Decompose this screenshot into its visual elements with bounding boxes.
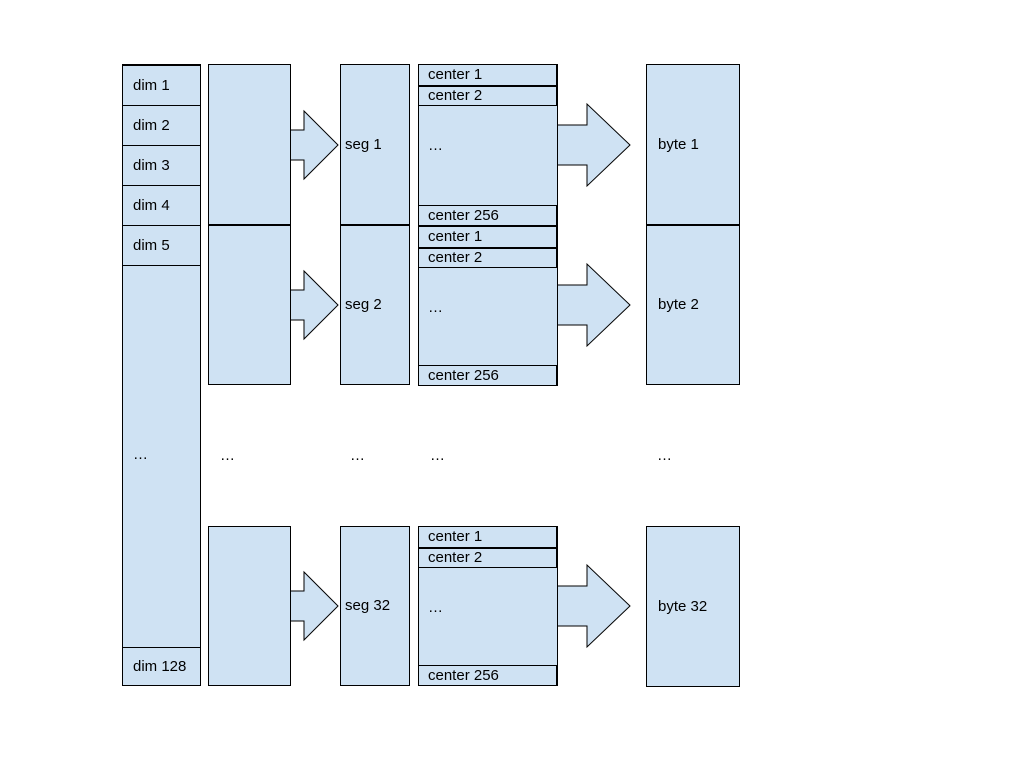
seg-label: seg 2 [345,296,382,314]
seg-label: seg 32 [345,597,390,615]
center-cell-label: center 256 [428,667,499,685]
center-group-ellipsis: … [428,136,443,156]
dim-cell-5: dim 5 [123,226,200,266]
seg-1-box: seg 1 [340,64,410,225]
center-group-2: center 1 center 2 … center 256 [418,226,558,386]
seg-label: seg 1 [345,136,382,154]
ellipsis-text: … [428,137,443,155]
dim-cell-3: dim 3 [123,146,200,186]
dim-column-ellipsis: … [133,446,148,464]
center-column-ellipsis: … [430,446,445,466]
byte-label: byte 32 [658,598,707,616]
ellipsis-text: … [428,599,443,617]
diagram-canvas: dim 1 dim 2 dim 3 dim 4 dim 5 … dim 128 … [0,0,1024,768]
right-arrow-icon [557,104,630,186]
dim-cell-label: dim 4 [133,197,170,215]
ellipsis-text: … [220,447,235,465]
center-cell: center 1 [418,64,557,86]
dim-cell-label: dim 3 [133,157,170,175]
dim-group-box-32 [208,526,291,686]
center-cell: center 256 [418,665,557,686]
center-cell-label: center 1 [428,228,482,246]
ellipsis-text: … [350,447,365,465]
center-group-1: center 1 center 2 … center 256 [418,64,558,226]
center-cell: center 1 [418,226,557,248]
dim-cell-label: dim 2 [133,117,170,135]
dim-group-box-2 [208,225,291,385]
ellipsis-text: … [430,447,445,465]
byte-label: byte 1 [658,136,699,154]
right-arrow-icon [557,565,630,647]
byte-column-ellipsis: … [657,446,672,466]
center-cell: center 1 [418,526,557,548]
center-cell: center 2 [418,86,557,106]
right-arrow-icon [290,572,338,640]
center-cell: center 2 [418,548,557,568]
right-arrow-icon [290,111,338,179]
right-arrow-icon [290,271,338,339]
byte-1-box: byte 1 [646,64,740,225]
dim-cell-128: dim 128 [123,647,200,685]
dim-cell-label: dim 128 [133,658,186,676]
dim-cell-4: dim 4 [123,186,200,226]
center-cell: center 256 [418,365,557,386]
dim-group-box-1 [208,64,291,225]
dim-cell-label: dim 5 [133,237,170,255]
seg-column-ellipsis: … [350,446,365,466]
center-cell-label: center 1 [428,528,482,546]
dim-cell-label: dim 1 [133,77,170,95]
byte-2-box: byte 2 [646,225,740,385]
center-cell-label: center 2 [428,549,482,567]
seg-2-box: seg 2 [340,225,410,385]
center-cell-label: center 256 [428,207,499,225]
ellipsis-text: … [657,447,672,465]
center-cell-label: center 256 [428,367,499,385]
center-cell-label: center 1 [428,66,482,84]
center-group-ellipsis: … [428,598,443,618]
group-column-ellipsis: … [220,446,235,466]
center-cell: center 256 [418,205,557,226]
center-cell-label: center 2 [428,249,482,267]
center-cell: center 2 [418,248,557,268]
center-cell-label: center 2 [428,87,482,105]
dim-cell-1: dim 1 [123,66,200,106]
ellipsis-text: … [428,299,443,317]
byte-32-box: byte 32 [646,526,740,687]
byte-label: byte 2 [658,296,699,314]
seg-32-box: seg 32 [340,526,410,686]
center-group-ellipsis: … [428,298,443,318]
right-arrow-icon [557,264,630,346]
dim-cell-2: dim 2 [123,106,200,146]
dim-column: dim 1 dim 2 dim 3 dim 4 dim 5 … dim 128 [122,64,201,686]
center-group-32: center 1 center 2 … center 256 [418,526,558,686]
